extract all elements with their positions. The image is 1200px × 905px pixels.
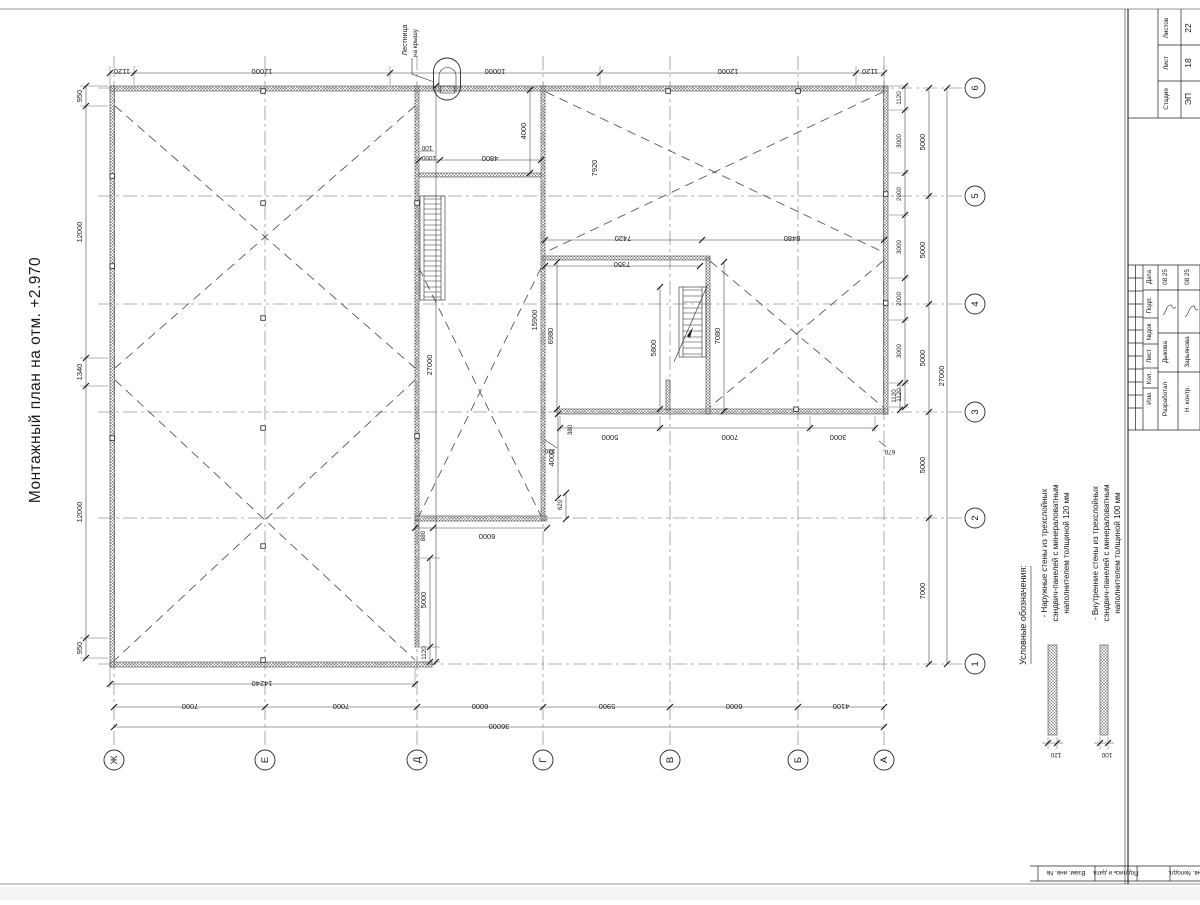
title-block: Листов 22 Лист 18 Стадия ЭП Дата Подп. №… bbox=[1128, 9, 1200, 430]
stamp-staff-role: Разработал bbox=[1161, 382, 1169, 417]
stamp-sheet-label: Лист bbox=[1163, 56, 1170, 70]
dim-label: 8480 bbox=[784, 234, 801, 243]
walls bbox=[110, 86, 888, 667]
signature bbox=[1185, 306, 1198, 317]
stamp-stage-label: Стадия bbox=[1163, 88, 1170, 109]
dim-label: 3000 bbox=[896, 344, 903, 359]
dim-label: 7080 bbox=[713, 328, 722, 345]
dim-label: 3000 bbox=[830, 433, 847, 442]
dim-label: 950 bbox=[75, 642, 84, 655]
dim-label: 7000 bbox=[918, 583, 927, 600]
legend-text: - Внутренние стены из трехслойных bbox=[1091, 486, 1100, 620]
stair-1 bbox=[420, 196, 445, 300]
bottom-strip: Взам. инв. № Подпись и дата Инв. №подл. bbox=[1030, 866, 1200, 881]
dim-label: 36000 bbox=[489, 722, 510, 731]
dim-label: 880 bbox=[420, 530, 427, 541]
grid-bubble-label: 4 bbox=[970, 301, 981, 306]
stamp-staff-name: Дыкова bbox=[1162, 341, 1169, 363]
dim-label: 5000 bbox=[419, 592, 428, 609]
dim-label: 5000 bbox=[918, 350, 927, 367]
stamp-staff-role: Н. контр. bbox=[1184, 386, 1191, 412]
grid-bubble-label: А bbox=[879, 756, 890, 763]
dim-label: 4000 bbox=[519, 123, 528, 140]
legend-text: - Наружные стены из трехслойных bbox=[1040, 489, 1049, 618]
stamp-sheet-value: 18 bbox=[1183, 58, 1193, 68]
grid-bubble-label: В bbox=[665, 757, 676, 763]
stamp-staff-name: Зарьянова bbox=[1184, 336, 1191, 368]
stamp-col-header: Изм. bbox=[1146, 391, 1153, 405]
stamp-stage-value: ЭП bbox=[1183, 93, 1193, 105]
dim-label: 5000 bbox=[918, 242, 927, 259]
plan-svg: Монтажный план на отм. +2.970 bbox=[0, 0, 1200, 900]
dim-label: 7000 bbox=[182, 702, 199, 711]
signature bbox=[1163, 305, 1176, 315]
dim-label: 1120 bbox=[896, 91, 903, 105]
roof-note-line1: Лестница bbox=[402, 24, 409, 55]
legend-heading: Условные обозначения: bbox=[1018, 565, 1028, 665]
drawing-sheet: Монтажный план на отм. +2.970 bbox=[0, 0, 1200, 900]
stamp-staff-date: 08.25 bbox=[1162, 269, 1169, 285]
dim-label: 6000 bbox=[479, 532, 496, 541]
dim-label: 4000 bbox=[547, 450, 556, 467]
stamp-col-header: Кол. bbox=[1146, 372, 1153, 385]
grid-bubble-label: Б bbox=[793, 757, 804, 763]
dim-label: 670 bbox=[884, 448, 895, 455]
dim-label: 12000 bbox=[75, 222, 84, 243]
dim-label: 1000 bbox=[422, 154, 437, 161]
grid-bubble-label: 3 bbox=[970, 409, 981, 414]
dim-label: 5000 bbox=[918, 134, 927, 151]
dim-label: 15900 bbox=[530, 310, 539, 331]
dim-label: 3000 bbox=[896, 240, 903, 255]
dimension-ticks bbox=[83, 70, 950, 730]
page-title: Монтажный план на отм. +2.970 bbox=[27, 257, 44, 503]
stamp-col-header: №док bbox=[1146, 323, 1153, 340]
grid-bubbles-letters: Ж Е Д Г В Б А bbox=[104, 750, 894, 770]
dim-label: 1120 bbox=[862, 67, 878, 76]
dim-label: 12000 bbox=[252, 67, 273, 76]
dimension-lines bbox=[86, 73, 947, 727]
grid-bubble-label: Д bbox=[412, 756, 423, 763]
stamp-staff-date: 08.25 bbox=[1184, 269, 1191, 285]
dim-label: 5900 bbox=[599, 702, 616, 711]
dim-label: 1120 bbox=[421, 646, 428, 660]
dim-label: 1120 bbox=[891, 389, 898, 403]
stamp-col-header: Лист bbox=[1146, 349, 1153, 363]
dim-label: 5000 bbox=[918, 457, 927, 474]
legend-text: сэндвич-панелей с минераловатным bbox=[1102, 485, 1111, 622]
dim-label: 7000 bbox=[722, 433, 739, 442]
sheet-frame bbox=[0, 9, 1200, 900]
dimension-labels: 1120 12000 10000 12000 1120 950 12000 13… bbox=[75, 67, 946, 731]
stamp-col-header: Дата bbox=[1146, 270, 1153, 284]
dim-label: 1340 bbox=[75, 364, 84, 381]
grid-bubble-label: Ж bbox=[109, 755, 120, 764]
grid-bubbles-numbers: 1 2 3 4 5 6 bbox=[965, 78, 985, 674]
grid-bubble-label: Г bbox=[538, 757, 549, 762]
dim-label: 6000 bbox=[472, 702, 489, 711]
dim-label: 2000 bbox=[896, 187, 903, 202]
strip-label: Инв. №подл. bbox=[1168, 869, 1200, 876]
dim-label: 14240 bbox=[252, 679, 273, 688]
dim-label: 12000 bbox=[718, 67, 739, 76]
legend-text: сэндвич-панелей с минераловатным bbox=[1051, 485, 1060, 622]
dim-label: 10000 bbox=[485, 67, 506, 76]
dim-label: 5800 bbox=[649, 340, 658, 357]
strip-label: Взам. инв. № bbox=[1046, 869, 1085, 876]
dim-label: 12000 bbox=[75, 502, 84, 523]
dim-label: 620 bbox=[557, 499, 564, 510]
dim-label: 27000 bbox=[425, 355, 434, 376]
legend-text: наполнителем толщиной 100 мм bbox=[1113, 492, 1122, 613]
dim-label: 6000 bbox=[726, 702, 743, 711]
legend-dim-label: 120 bbox=[1050, 751, 1061, 758]
legend-text: наполнителем толщиной 120 мм bbox=[1062, 492, 1071, 613]
dim-label: 1120 bbox=[114, 67, 130, 76]
grid-bubble-label: Е bbox=[260, 757, 271, 763]
dim-label: 4100 bbox=[833, 702, 850, 711]
dim-label: 3000 bbox=[896, 134, 903, 149]
dim-label: 27000 bbox=[937, 366, 946, 387]
dim-label: 7000 bbox=[333, 702, 350, 711]
dim-label: 4800 bbox=[482, 154, 499, 163]
grid-bubble-label: 5 bbox=[970, 193, 981, 198]
stamp-sheets-value: 22 bbox=[1183, 23, 1193, 33]
dim-label: 380 bbox=[567, 424, 574, 435]
stair-2 bbox=[674, 284, 708, 362]
stamp-col-header: Подп. bbox=[1146, 296, 1153, 313]
grid-bubble-label: 1 bbox=[970, 661, 981, 666]
dim-label: 7350 bbox=[614, 260, 631, 269]
grid-bubble-label: 2 bbox=[970, 515, 981, 520]
legend: Условные обозначения: - Наружные стены и… bbox=[1018, 485, 1122, 758]
grid-bubble-label: 6 bbox=[970, 85, 981, 90]
roof-note-line2: на крышу bbox=[412, 28, 419, 57]
dim-label: 2000 bbox=[896, 292, 903, 307]
dim-label: 6980 bbox=[546, 328, 555, 345]
dim-label: 950 bbox=[75, 90, 84, 103]
dim-label: 100 bbox=[421, 144, 432, 151]
legend-dim-label: 100 bbox=[1101, 751, 1112, 758]
dim-label: 7420 bbox=[615, 234, 632, 243]
dim-label: 7920 bbox=[590, 160, 599, 177]
stamp-sheets-label: Листов bbox=[1163, 17, 1170, 38]
dim-label: 5000 bbox=[602, 433, 619, 442]
strip-label: Подпись и дата bbox=[1093, 869, 1139, 876]
